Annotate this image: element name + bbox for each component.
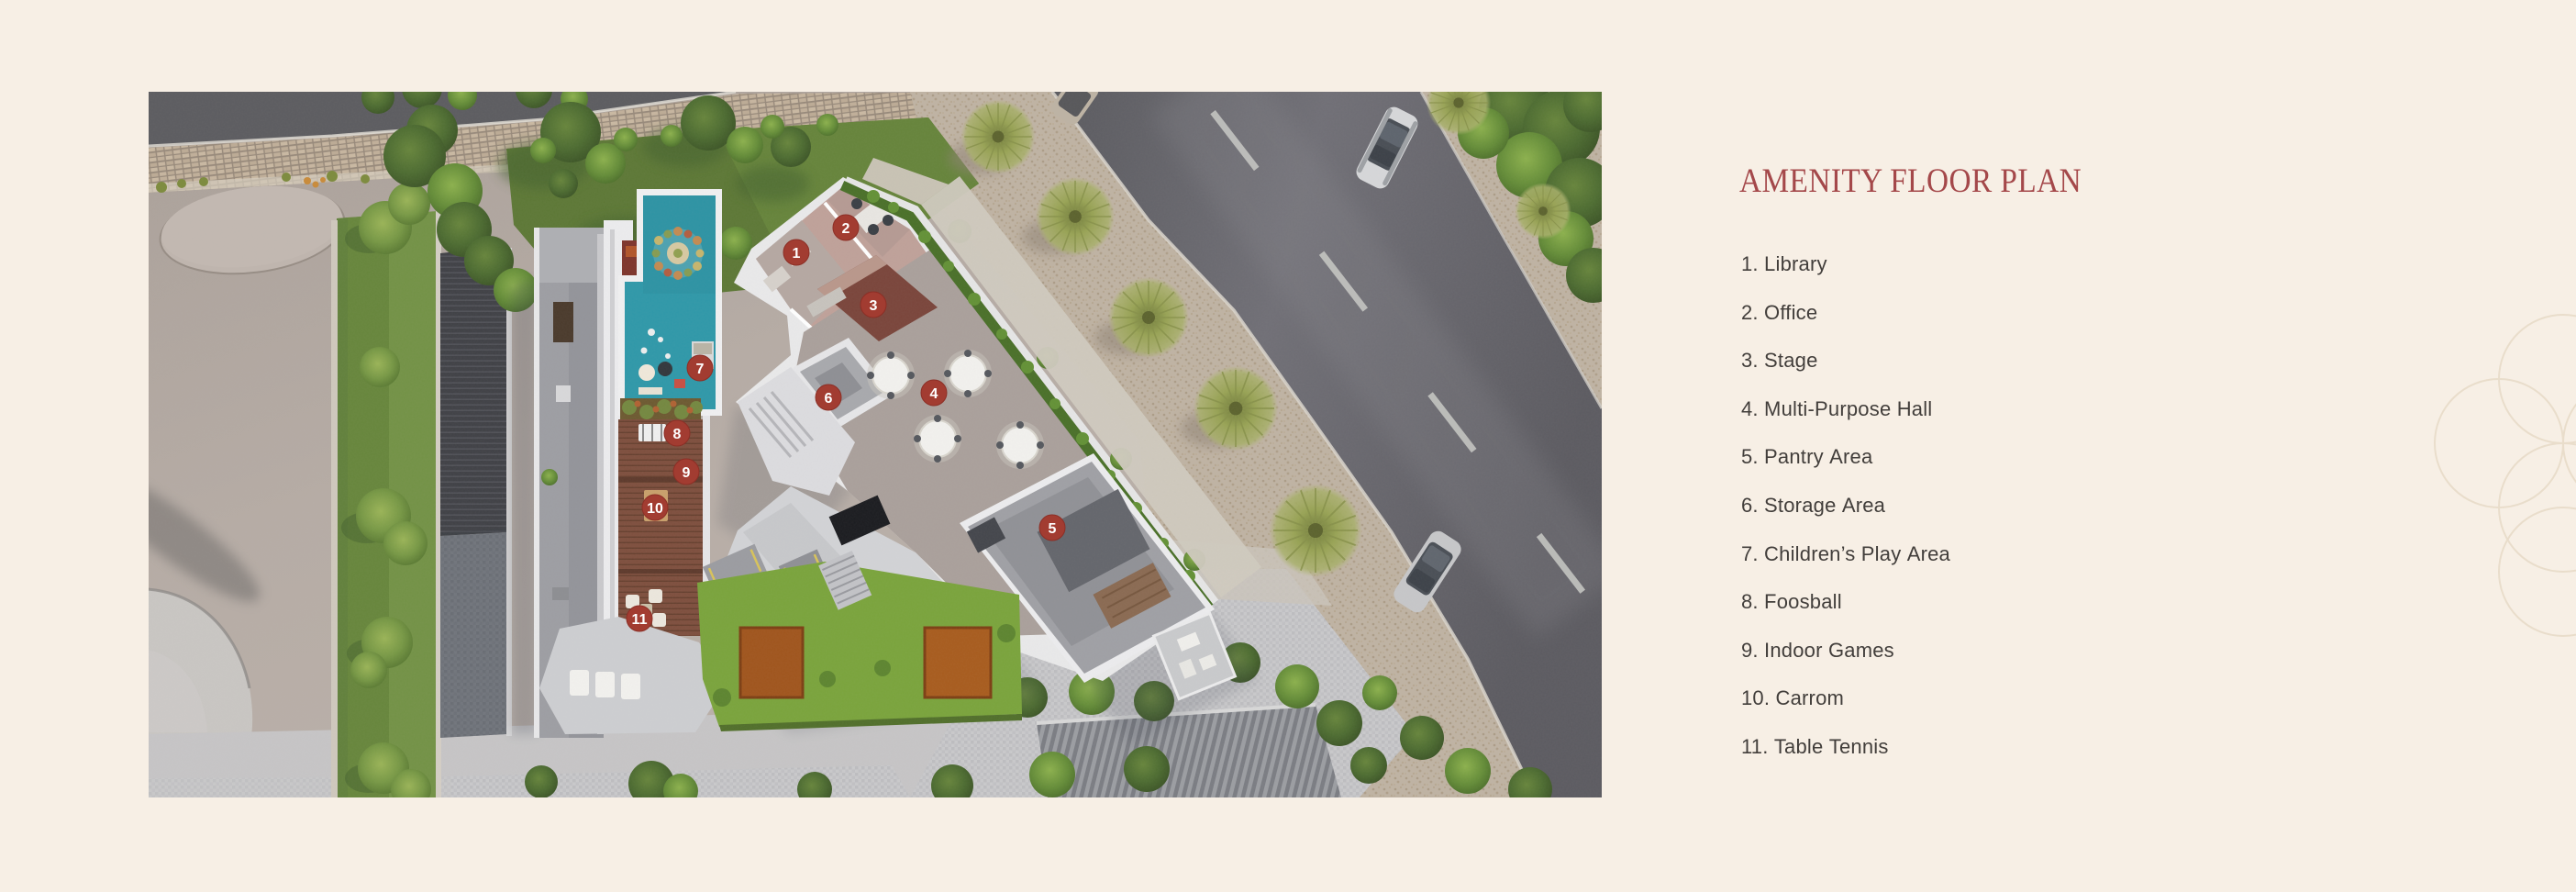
svg-text:6: 6 [825, 391, 833, 407]
svg-text:3: 3 [870, 298, 878, 314]
svg-text:1: 1 [793, 246, 801, 262]
svg-text:11: 11 [632, 612, 648, 628]
svg-text:4: 4 [930, 386, 938, 402]
svg-text:8: 8 [673, 427, 682, 442]
svg-text:9: 9 [683, 465, 691, 481]
svg-text:5: 5 [1049, 521, 1057, 537]
svg-text:10: 10 [647, 501, 663, 517]
svg-text:2: 2 [842, 221, 850, 237]
svg-text:7: 7 [696, 362, 705, 377]
